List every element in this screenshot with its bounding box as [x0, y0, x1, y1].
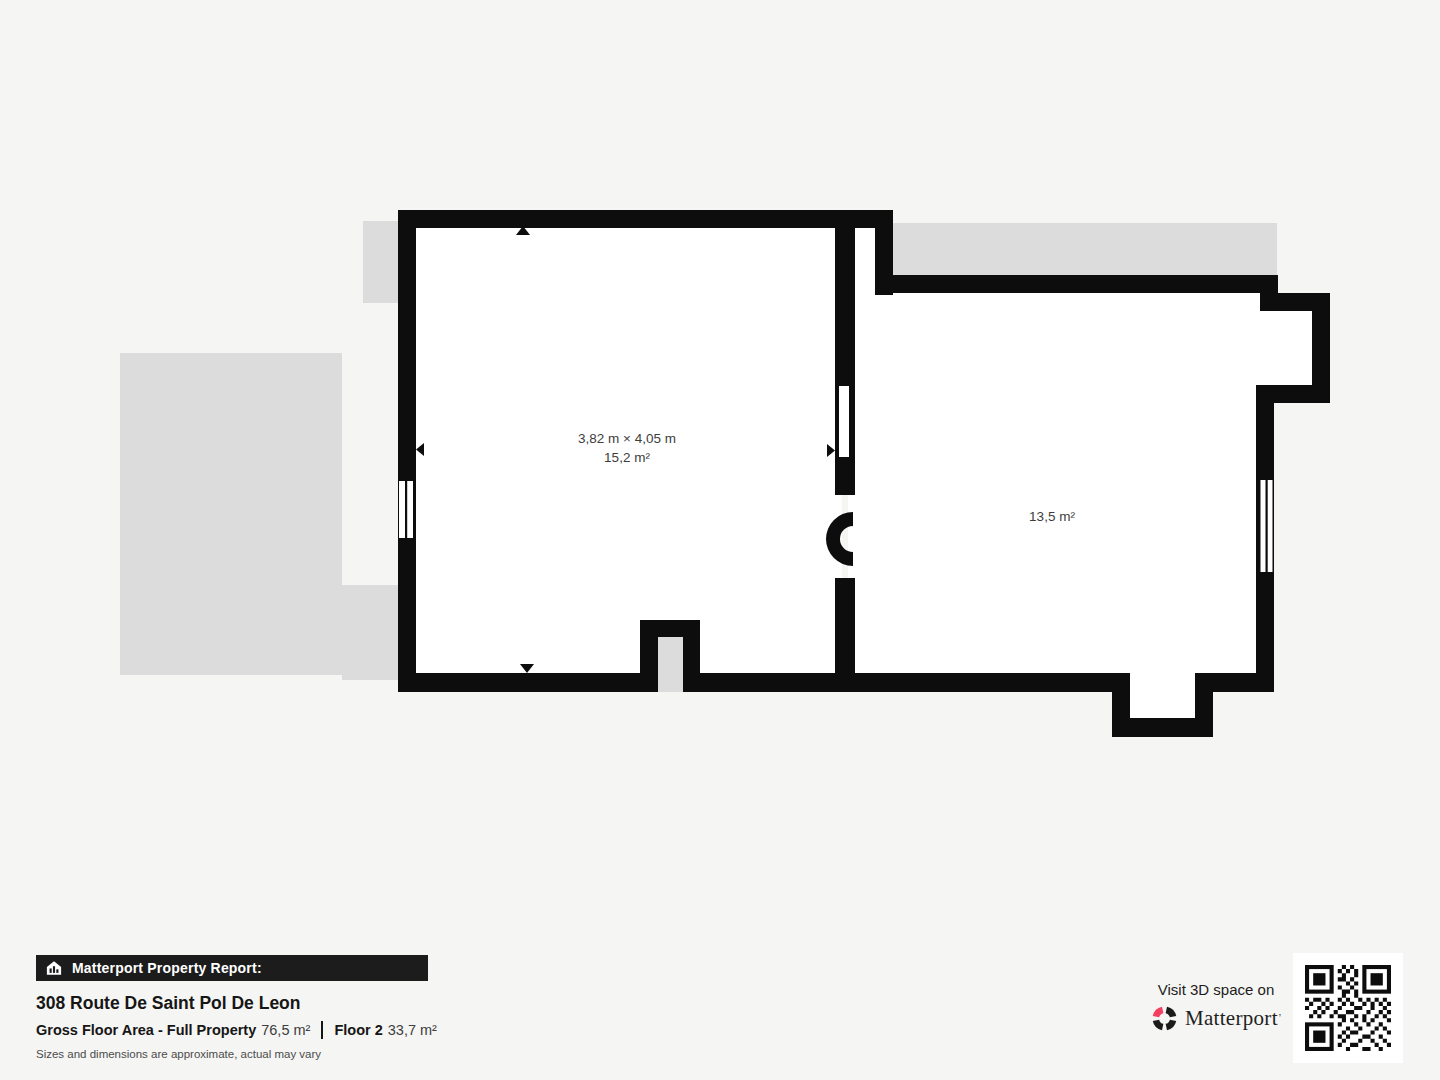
matterport-wordmark: Matterport — [1185, 1006, 1278, 1031]
window-right-wall — [1261, 480, 1273, 572]
qr-pattern — [1305, 965, 1391, 1051]
wall-divider-lower — [835, 578, 855, 673]
gross-floor-area-value: 76,5 m² — [261, 1022, 310, 1038]
room-left-dimensions-label: 3,82 m × 4,05 m — [578, 431, 676, 446]
stats-separator — [321, 1021, 323, 1039]
wall-bottom-right-a — [855, 673, 1130, 692]
room-right-bottom-pocket — [1130, 673, 1195, 718]
window-left-wall — [399, 481, 413, 538]
wall-left — [398, 210, 416, 692]
matterport-promo: Visit 3D space on Matterport’ — [1141, 981, 1291, 1032]
visit-3d-space-text: Visit 3D space on — [1158, 981, 1274, 998]
house-chart-icon — [45, 960, 63, 976]
window-divider-wall — [839, 386, 849, 457]
floor-label: Floor 2 — [334, 1022, 382, 1038]
property-address: 308 Route De Saint Pol De Leon — [36, 993, 301, 1014]
underlay-top-left — [363, 221, 398, 303]
room-right-area-label: 13,5 m² — [1029, 509, 1075, 524]
qr-finder-top-left — [1305, 965, 1334, 994]
wall-bottom-left-a — [398, 673, 658, 692]
trademark-mark: ’ — [1279, 1013, 1281, 1024]
matterport-pinwheel-icon — [1151, 1005, 1178, 1032]
wall-top-left-room — [398, 210, 893, 228]
disclaimer-text: Sizes and dimensions are approximate, ac… — [36, 1048, 321, 1060]
room-left-area-label: 15,2 m² — [604, 450, 650, 465]
wall-divider-mid — [835, 458, 855, 495]
underlay-left-block — [120, 353, 342, 675]
floor-value: 33,7 m² — [388, 1022, 437, 1038]
qr-code — [1293, 953, 1403, 1063]
underlay-left-connector — [342, 585, 399, 680]
room-floors — [410, 222, 1316, 718]
matterport-logo: Matterport’ — [1151, 1005, 1281, 1032]
wall-bump-left — [640, 620, 658, 692]
gross-floor-area-label: Gross Floor Area - Full Property — [36, 1022, 256, 1038]
qr-finder-top-right — [1362, 965, 1391, 994]
report-banner: Matterport Property Report: — [36, 955, 428, 981]
wall-bottom-left-b — [683, 673, 855, 692]
underlay-top-strip — [893, 223, 1277, 275]
wall-bump-right — [682, 620, 700, 692]
floor-area-stats: Gross Floor Area - Full Property 76,5 m²… — [36, 1021, 437, 1039]
room-right-floor — [848, 285, 1263, 680]
bottom-opening — [658, 637, 683, 692]
qr-finder-bottom-left — [1305, 1022, 1334, 1051]
floor-plan: 3,82 m × 4,05 m 15,2 m² 13,5 m² — [0, 0, 1440, 1080]
wall-divider-upper — [835, 228, 855, 385]
wall-top-right-room — [875, 275, 1278, 293]
wall-bottom-bay-right — [1195, 673, 1213, 737]
report-banner-title: Matterport Property Report: — [72, 960, 262, 976]
room-right-bay-floor — [1256, 311, 1316, 389]
room-right-notch — [855, 228, 875, 298]
